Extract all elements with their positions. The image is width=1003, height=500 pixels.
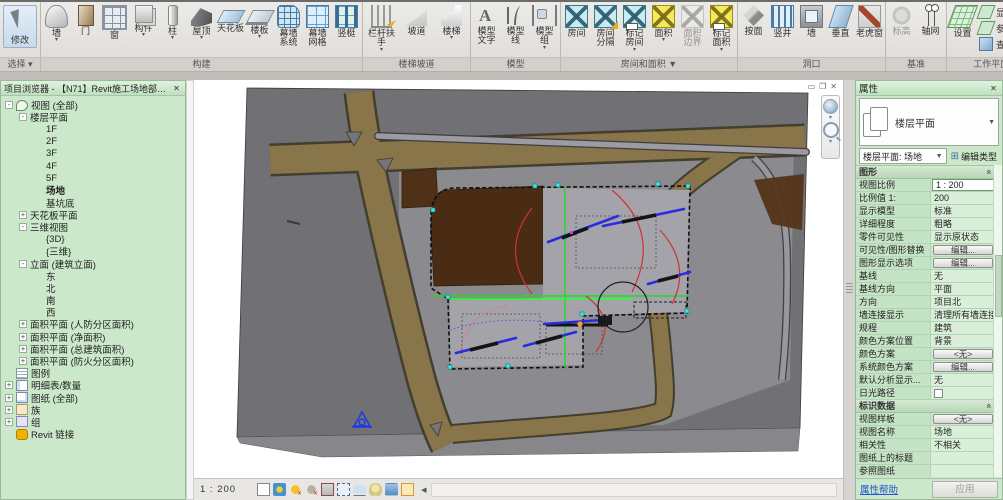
ribbon: 修改 选择 ▾ 墙 ▾ 门 ▾: [0, 0, 1003, 72]
ribbon-button-icon: [976, 5, 995, 19]
ribbon-button-label: 模型 线: [502, 27, 529, 46]
ribbon-button[interactable]: 竖梃 ▾: [333, 4, 360, 38]
project-browser-title: 项目浏览器 - 【N71】Revit施工场地部署模型.rvt: [4, 82, 171, 95]
property-value[interactable]: 建筑: [931, 322, 995, 334]
tree-item-icon: [16, 404, 28, 415]
tree-item-icon: [16, 429, 28, 440]
ribbon-button-label: 坡道: [407, 27, 425, 36]
ribbon-button-icon: [441, 5, 462, 26]
chevron-down-icon[interactable]: ▼: [988, 119, 995, 126]
ribbon-button-icon: [505, 5, 526, 26]
tree-item[interactable]: 南: [1, 294, 185, 306]
group-label-opening: 洞口: [738, 57, 885, 71]
tree-item[interactable]: - 视图 (全部): [1, 99, 185, 111]
property-label: 图纸上的标题: [856, 452, 931, 464]
property-label: 视图样板: [856, 413, 931, 425]
group-label-workplane: 工作平面: [947, 57, 1003, 71]
property-row: 方向 方向 项目北: [856, 296, 995, 309]
property-row: 视图样板 视图样板 <无>: [856, 413, 995, 426]
ribbon-button-icon: [828, 5, 853, 28]
minimize-icon[interactable]: ▭: [808, 82, 816, 91]
revit-application-window: 修改 选择 ▾ 墙 ▾ 门 ▾: [0, 0, 1003, 500]
ribbon-button-icon: [947, 5, 978, 28]
property-value[interactable]: 场地: [931, 426, 995, 438]
property-row: 相关性 相关性 不相关: [856, 439, 995, 452]
ribbon-button[interactable]: 幕墙 网格 ▾: [304, 4, 331, 48]
tree-expander-icon[interactable]: -: [19, 113, 27, 121]
type-selector[interactable]: 楼层平面 ▼: [859, 98, 999, 146]
tree-item[interactable]: 北: [1, 282, 185, 294]
ribbon-button-icon: [681, 5, 704, 28]
property-label: 图形显示选项: [856, 257, 931, 269]
tree-item[interactable]: - 楼层平面: [1, 111, 185, 123]
ribbon-button-icon: [168, 5, 178, 26]
ribbon-button[interactable]: 房间 ▾: [563, 4, 590, 38]
group-label-datum: 基准: [886, 57, 946, 71]
tree-item-icon: [16, 392, 28, 403]
tree-item-icon: [16, 380, 28, 391]
ribbon-button-label: 房间: [567, 29, 585, 38]
dropdown-caret-icon: ▾: [633, 48, 636, 53]
ribbon-button-icon: [45, 5, 68, 28]
property-value[interactable]: 不相关: [931, 439, 995, 451]
property-value[interactable]: 项目北: [931, 296, 995, 308]
ribbon-button-label: 窗: [110, 31, 119, 40]
group-label-model: 模型: [471, 57, 560, 71]
view-control-icon[interactable]: [305, 483, 318, 496]
tree-item[interactable]: 5F: [1, 172, 185, 184]
tree-item[interactable]: 2F: [1, 136, 185, 148]
ribbon-button-icon: [135, 5, 153, 23]
properties-titlebar[interactable]: 属性: [856, 81, 1002, 96]
ribbon-button-label: 模型 文字: [473, 27, 500, 46]
tree-item[interactable]: 1F: [1, 123, 185, 135]
chevron-down-icon[interactable]: ▼: [936, 153, 943, 160]
tree-item[interactable]: {3D}: [1, 233, 185, 245]
property-row: 视图名称 视图名称 场地: [856, 426, 995, 439]
view-control-icon[interactable]: [353, 483, 366, 496]
tree-expander-icon[interactable]: +: [19, 357, 27, 365]
ribbon-button-label: 老虎窗: [856, 29, 883, 38]
group-label-room-area[interactable]: 房间和面积 ▼: [561, 57, 737, 71]
property-label: 基线方向: [856, 283, 931, 295]
ribbon-button[interactable]: 模型 组 ▾: [531, 4, 558, 51]
tree-expander-icon[interactable]: -: [5, 101, 13, 109]
close-icon[interactable]: [171, 83, 182, 94]
ribbon-button-icon: [920, 5, 941, 26]
ribbon-button-icon: [710, 5, 733, 28]
property-label: 规程: [856, 322, 931, 334]
dropdown-caret-icon: ▾: [142, 33, 145, 38]
tree-item[interactable]: - 三维视图: [1, 221, 185, 233]
ribbon-button-label: 参照 平面: [996, 22, 1003, 35]
property-value[interactable]: 200: [931, 192, 995, 204]
property-row: 显示模型 显示模型 标准: [856, 205, 995, 218]
ribbon-button-label: 房间 分隔: [592, 29, 619, 48]
ribbon-button[interactable]: 模型 文字 ▾: [473, 4, 500, 46]
property-label: 颜色方案位置: [856, 335, 931, 347]
tree-item[interactable]: + 组: [1, 416, 185, 428]
ribbon-button[interactable]: 标记 面积 ▾: [708, 4, 735, 53]
ribbon-button[interactable]: 老虎窗 ▾: [856, 4, 883, 38]
tree-expander-icon[interactable]: +: [5, 381, 13, 389]
ribbon-button[interactable]: 坡道 ▾: [400, 4, 433, 36]
tree-item[interactable]: 东: [1, 270, 185, 282]
ribbon-button-label: 标记 面积: [708, 29, 735, 48]
property-row: 墙连接显示 墙连接显示 清理所有墙连接: [856, 309, 995, 322]
ribbon-button-icon: [277, 5, 300, 28]
property-label: 墙连接显示: [856, 309, 931, 321]
view-control-icon[interactable]: [385, 483, 398, 496]
ribbon-button[interactable]: 轴网 ▾: [917, 4, 944, 36]
property-value[interactable]: 标准: [931, 205, 995, 217]
tree-item[interactable]: + 面积平面 (防火分区面积): [1, 355, 185, 367]
ribbon-button[interactable]: 按面 ▾: [740, 4, 767, 36]
property-value[interactable]: 编辑...: [933, 245, 993, 255]
ribbon-button-label: 竖梃: [337, 29, 355, 38]
edit-type-button[interactable]: ⊞ 编辑类型: [949, 148, 999, 164]
ribbon-button[interactable]: 幕墙 系统 ▾: [275, 4, 302, 48]
tree-item[interactable]: 基坑底: [1, 197, 185, 209]
edit-type-label: 编辑类型: [961, 150, 997, 163]
property-row: 日光路径 日光路径: [856, 387, 995, 400]
ribbon-button-icon: [406, 5, 427, 26]
property-value[interactable]: <无>: [933, 414, 993, 424]
floor-plan-type-icon: [863, 107, 887, 137]
tree-expander-icon[interactable]: +: [5, 406, 13, 414]
ribbon-button-icon: [652, 5, 675, 28]
tree-item[interactable]: + 天花板平面: [1, 209, 185, 221]
property-row: 视图比例 视图比例 1 : 200: [856, 179, 995, 192]
dropdown-caret-icon: ▾: [200, 36, 203, 41]
property-row: 颜色方案位置 颜色方案位置 背景: [856, 335, 995, 348]
ribbon-group-workplane: 设置 显示 参照 平面: [947, 2, 1003, 71]
view-control-icon[interactable]: [401, 483, 414, 496]
tree-item-label: 楼层平面: [30, 110, 68, 124]
tree-item[interactable]: 4F: [1, 160, 185, 172]
ribbon-button[interactable]: 楼梯 ▾: [435, 4, 468, 41]
ribbon-button-label: 幕墙 系统: [275, 29, 302, 48]
modify-button[interactable]: 修改: [3, 5, 37, 48]
tree-item-label: 4F: [46, 161, 57, 172]
tree-expander-icon[interactable]: -: [19, 223, 27, 231]
ribbon-button-icon: [565, 5, 588, 28]
property-value[interactable]: [931, 465, 995, 477]
property-section-header[interactable]: 标识数据: [856, 400, 995, 412]
property-value[interactable]: 平面: [931, 283, 995, 295]
tree-item-label: {3D}: [46, 234, 65, 245]
tree-expander-icon[interactable]: +: [5, 418, 13, 426]
ribbon-button[interactable]: 模型 线 ▾: [502, 4, 529, 46]
ribbon-button-icon: [306, 5, 329, 28]
close-icon[interactable]: [988, 83, 999, 94]
ribbon-button[interactable]: 窗 ▾: [101, 4, 128, 40]
project-browser-scrollbar[interactable]: [186, 80, 194, 500]
navigation-bar: ▾ ▾: [821, 95, 840, 159]
property-label: 方向: [856, 296, 931, 308]
ribbon-button[interactable]: 楼板 ▾: [246, 4, 273, 40]
view-control-icon[interactable]: [289, 483, 302, 496]
view-control-icon[interactable]: [369, 483, 382, 496]
property-label: 相关性: [856, 439, 931, 451]
ribbon-button-label: 设置: [953, 29, 971, 38]
ribbon-button-label: 竖井: [773, 29, 791, 38]
ribbon-button-label: 查看器: [996, 38, 1003, 51]
ribbon-button[interactable]: 墙 ▾: [798, 4, 825, 38]
property-value[interactable]: [931, 452, 995, 464]
ribbon-button-icon: [979, 37, 993, 51]
ribbon-group-model: 模型 文字 ▾ 模型 线 ▾ 模型 组 ▾ 模型: [471, 2, 561, 71]
tree-item[interactable]: 3F: [1, 148, 185, 160]
property-value[interactable]: 1 : 200: [932, 179, 994, 191]
ribbon-button-label: 幕墙 网格: [304, 29, 331, 48]
close-icon[interactable]: ✕: [830, 82, 837, 91]
ribbon-button-label: 模型 组: [531, 27, 558, 46]
view-control-icon[interactable]: [337, 483, 350, 496]
ribbon-button-icon: [78, 5, 94, 26]
ribbon-button-icon: [216, 10, 245, 23]
property-row: 图纸上的标题 图纸上的标题: [856, 452, 995, 465]
group-label-build: 构建: [41, 57, 362, 71]
site-plan-drawing[interactable]: [194, 80, 843, 478]
group-label-circulation: 楼梯坡道: [363, 57, 470, 71]
ribbon-button[interactable]: 墙 ▾: [43, 4, 70, 43]
tree-expander-icon[interactable]: +: [19, 211, 27, 219]
ribbon-button-label: 标记 房间: [621, 29, 648, 48]
property-row: 零件可见性 零件可见性 显示原状态: [856, 231, 995, 244]
ribbon-button[interactable]: 构件 ▾: [130, 4, 157, 38]
tree-item-label: 2F: [46, 136, 57, 147]
property-row: 比例值 1: 比例值 1: 200: [856, 192, 995, 205]
modify-label: 修改: [11, 36, 29, 45]
ribbon-button-icon: [102, 5, 127, 30]
dropdown-caret-icon: ▾: [171, 36, 174, 41]
ribbon-group-circulation: 栏杆扶手 ▾ 坡道 ▾ 楼梯 ▾ 楼梯坡道: [363, 2, 471, 71]
tree-item[interactable]: + 族: [1, 404, 185, 416]
modify-cursor-icon: [10, 9, 30, 35]
tree-item-label: 三维视图: [30, 220, 68, 234]
tree-item[interactable]: + 明细表/数量: [1, 379, 185, 391]
ribbon-button-icon: [476, 5, 497, 26]
tree-expander-icon[interactable]: +: [19, 320, 27, 328]
ribbon-group-opening: 按面 ▾ 竖井 ▾ 墙 ▾: [738, 2, 886, 71]
property-value[interactable]: 编辑...: [933, 362, 993, 372]
project-browser-tree: - 视图 (全部) - 楼层平面 1F: [1, 96, 185, 440]
property-label: 比例值 1:: [856, 192, 931, 204]
zoom-icon[interactable]: [823, 122, 839, 138]
ribbon-button-icon: [891, 5, 912, 26]
properties-help-link[interactable]: 属性帮助: [860, 482, 898, 496]
ribbon-button[interactable]: 栏杆扶手 ▾: [365, 4, 398, 53]
ribbon-button[interactable]: 设置: [949, 4, 976, 38]
ribbon-stack-button[interactable]: 显示: [979, 4, 1003, 20]
type-selector-label: 楼层平面: [895, 115, 980, 130]
property-label: 颜色方案: [856, 348, 931, 360]
ribbon-stack-button[interactable]: 参照 平面: [979, 20, 1003, 36]
property-row: 参照图纸 参照图纸: [856, 465, 995, 477]
apply-button[interactable]: 应用: [932, 481, 998, 498]
ribbon-button-icon: [623, 5, 646, 28]
dropdown-caret-icon: ▾: [662, 38, 665, 43]
ribbon-button-icon: [743, 5, 764, 26]
ribbon-button-icon: [858, 5, 881, 28]
property-label: 默认分析显示...: [856, 374, 931, 386]
ribbon-button[interactable]: 竖井 ▾: [769, 4, 796, 38]
property-label: 视图比例: [856, 179, 931, 191]
ribbon-button-label: 天花板: [217, 24, 244, 33]
restore-icon[interactable]: ❐: [819, 82, 826, 91]
splitter-grip[interactable]: [846, 283, 853, 293]
property-row: 图形 图形: [856, 166, 995, 179]
property-label: 视图名称: [856, 426, 931, 438]
drawing-canvas[interactable]: ▭ ❐ ✕ ▾ ▾: [194, 80, 843, 478]
property-row: 详细程度 详细程度 粗略: [856, 218, 995, 231]
ribbon-button-label: 栏杆扶手: [365, 29, 398, 48]
property-row: 基线 基线 无: [856, 270, 995, 283]
property-label: 参照图纸: [856, 465, 931, 477]
ribbon-button-label: 轴网: [921, 27, 939, 36]
ribbon-button-icon: [245, 10, 275, 25]
project-browser-panel: 项目浏览器 - 【N71】Revit施工场地部署模型.rvt - 视图 (全部)…: [0, 80, 186, 500]
ribbon-button[interactable]: 垂直 ▾: [827, 4, 854, 38]
edit-type-icon: ⊞: [951, 151, 959, 162]
ribbon-button-icon: [594, 5, 617, 28]
chevron-down-icon[interactable]: ▾: [829, 139, 832, 145]
ribbon-button[interactable]: 面积 ▾: [650, 4, 677, 43]
ribbon-button[interactable]: 标记 房间 ▾: [621, 4, 648, 53]
ribbon-group-select: 修改 选择 ▾: [0, 2, 41, 71]
dropdown-caret-icon: ▾: [543, 46, 546, 51]
property-row: 颜色方案 颜色方案 <无>: [856, 348, 995, 361]
tree-item-label: 5F: [46, 173, 57, 184]
view-window-controls: ▭ ❐ ✕: [808, 82, 837, 91]
instance-selector[interactable]: 楼层平面: 场地 ▼: [859, 148, 947, 164]
tree-item-label: 1F: [46, 124, 57, 135]
properties-panel: 属性 楼层平面 ▼ 楼层平面: 场地 ▼ ⊞ 编辑类型 图形 图形: [855, 80, 1003, 500]
ribbon-group-datum: 标高 ▾ 轴网 ▾ 基准: [886, 2, 947, 71]
properties-footer: 属性帮助 应用: [856, 478, 1002, 499]
tree-item-label: 立面 (建筑立面): [30, 257, 96, 271]
view-control-icon[interactable]: [257, 483, 270, 496]
tree-item-label: Revit 链接: [31, 427, 74, 441]
property-row: 默认分析显示... 默认分析显示... 无: [856, 374, 995, 387]
tree-expander-icon[interactable]: +: [5, 394, 13, 402]
tree-item-icon: [16, 368, 28, 379]
ribbon-button-label: 门: [81, 27, 90, 36]
view-control-icon[interactable]: [273, 483, 286, 496]
dropdown-caret-icon: ▾: [380, 48, 383, 53]
property-value[interactable]: 无: [931, 270, 995, 282]
dropdown-caret-icon: ▾: [258, 35, 261, 40]
property-value[interactable]: 显示原状态: [931, 231, 995, 243]
view-control-icon[interactable]: [321, 483, 334, 496]
property-value[interactable]: 编辑...: [933, 258, 993, 268]
ribbon-button-label: 垂直: [831, 29, 849, 38]
property-label: 系统颜色方案: [856, 361, 931, 373]
property-section-header[interactable]: 图形: [856, 166, 995, 178]
properties-title: 属性: [859, 81, 988, 95]
ribbon-button-icon: [532, 5, 557, 26]
tree-item[interactable]: - 立面 (建筑立面): [1, 257, 185, 269]
properties-grid: 图形 图形 视图比例 视图比例 1 : 200 比例值 1: 比例值 1: 20…: [856, 165, 995, 477]
ribbon-button-icon: [191, 5, 212, 26]
group-label-select[interactable]: 选择 ▾: [0, 57, 40, 71]
property-label: 基线: [856, 270, 931, 282]
ribbon-stack-button[interactable]: 查看器: [979, 36, 1003, 52]
ribbon-button[interactable]: 门 ▾: [72, 4, 99, 36]
ribbon-button[interactable]: 天花板 ▾: [217, 4, 244, 33]
horizontal-scrollbar[interactable]: [431, 483, 837, 497]
tree-item[interactable]: Revit 链接: [1, 428, 185, 440]
property-label: 详细程度: [856, 218, 931, 230]
property-row: 基线方向 基线方向 平面: [856, 283, 995, 296]
panel-splitter[interactable]: [843, 80, 855, 500]
ribbon-group-build: 墙 ▾ 门 ▾ 窗 ▾: [41, 2, 363, 71]
tree-item-icon: [16, 416, 28, 427]
properties-scrollbar[interactable]: [993, 165, 1002, 477]
ribbon-button[interactable]: 房间 分隔 ▾: [592, 4, 619, 48]
ribbon-button-icon: [976, 21, 995, 35]
property-row: 可见性/图形替换 可见性/图形替换 编辑...: [856, 244, 995, 257]
property-value[interactable]: 背景: [931, 335, 995, 347]
tree-expander-icon[interactable]: +: [19, 345, 27, 353]
tree-item-label: 3F: [46, 148, 57, 159]
property-value[interactable]: 清理所有墙连接: [931, 309, 995, 321]
scrollbar-thumb[interactable]: [995, 255, 1002, 317]
tree-item[interactable]: 场地: [1, 184, 185, 196]
scroll-left-icon[interactable]: ◀: [421, 486, 426, 494]
property-label: 显示模型: [856, 205, 931, 217]
ribbon-button-label: 面积 边界: [679, 29, 706, 48]
ribbon-button[interactable]: 面积 边界 ▾: [679, 4, 706, 48]
property-label: 日光路径: [856, 387, 931, 399]
view-scale-button[interactable]: 1 : 200: [200, 484, 236, 495]
dropdown-caret-icon: ▾: [720, 48, 723, 53]
property-value[interactable]: [931, 387, 995, 399]
property-value[interactable]: <无>: [933, 349, 993, 359]
ribbon-button[interactable]: 柱 ▾: [159, 4, 186, 41]
dropdown-caret-icon: ▾: [450, 36, 453, 41]
property-row: 标识数据 标识数据: [856, 400, 995, 413]
tree-item[interactable]: 图例: [1, 367, 185, 379]
tree-item[interactable]: + 图纸 (全部): [1, 392, 185, 404]
ribbon-button[interactable]: 标高 ▾: [888, 4, 915, 36]
project-browser-titlebar[interactable]: 项目浏览器 - 【N71】Revit施工场地部署模型.rvt: [1, 81, 185, 96]
ribbon-button-label: 墙: [807, 29, 816, 38]
tree-expander-icon[interactable]: -: [19, 260, 27, 268]
property-value[interactable]: 无: [931, 374, 995, 386]
steering-wheel-icon[interactable]: [823, 99, 838, 114]
property-label: 可见性/图形替换: [856, 244, 931, 256]
tree-item-icon: [16, 100, 28, 111]
property-row: 规程 规程 建筑: [856, 322, 995, 335]
view-control-bar: 1 : 200 ◀: [194, 478, 843, 500]
ribbon-button-icon: [771, 5, 794, 28]
ribbon-button-label: 标高: [892, 27, 910, 36]
tree-expander-icon[interactable]: +: [19, 333, 27, 341]
ribbon-group-room-area: 房间 ▾ 房间 分隔 ▾ 标记 房间 ▾: [561, 2, 738, 71]
ribbon-button-icon: [800, 5, 823, 28]
ribbon-button-icon: [371, 5, 392, 28]
ribbon-button[interactable]: 屋顶 ▾: [188, 4, 215, 41]
dropdown-caret-icon: ▾: [55, 38, 58, 43]
property-row: 系统颜色方案 系统颜色方案 编辑...: [856, 361, 995, 374]
ribbon-button-icon: [335, 5, 358, 28]
property-row: 图形显示选项 图形显示选项 编辑...: [856, 257, 995, 270]
chevron-down-icon[interactable]: ▾: [829, 115, 832, 121]
property-value[interactable]: 粗略: [931, 218, 995, 230]
instance-selector-label: 楼层平面: 场地: [863, 150, 936, 163]
